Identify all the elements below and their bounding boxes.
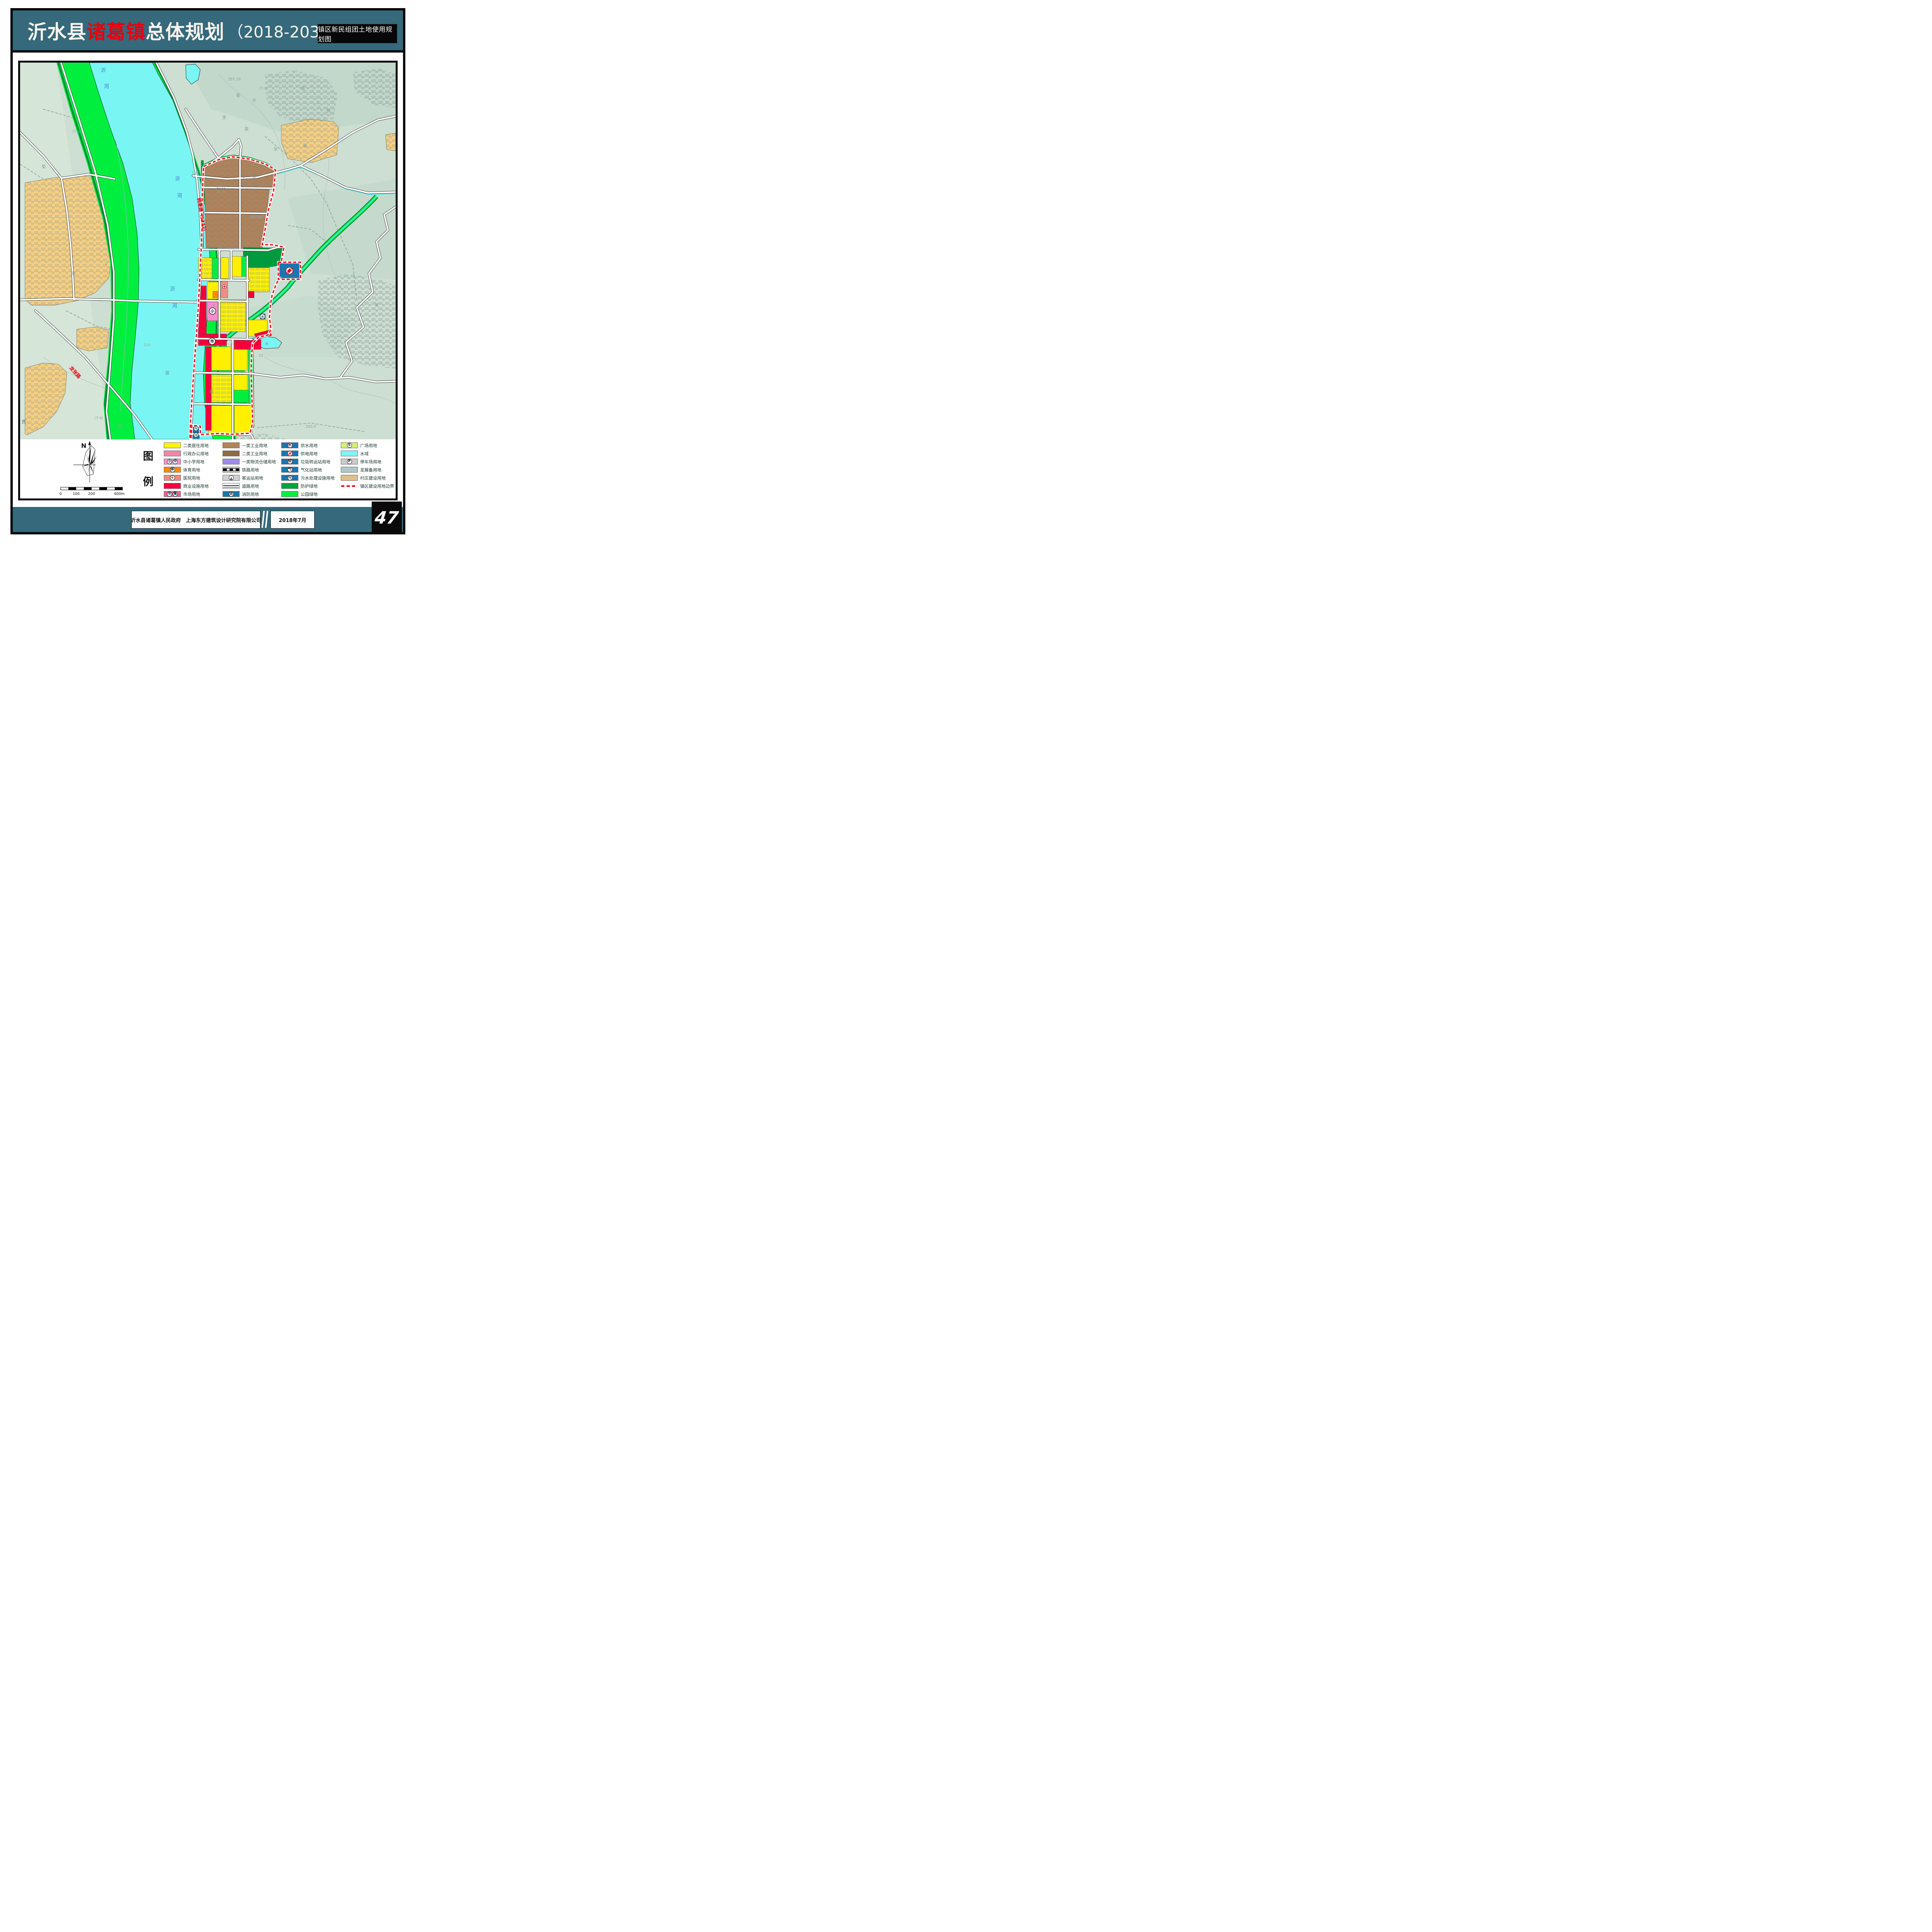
legend-item-label: 污水处理设施用地	[301, 475, 335, 481]
svg-text:（7-9）: （7-9）	[70, 130, 83, 134]
title-town: 诸葛镇	[87, 17, 146, 44]
scale-tick: 0	[60, 492, 62, 496]
legend-swatch-plain	[223, 451, 240, 456]
scale-bar: 0 100 200 400m	[60, 487, 124, 496]
legend-panel: N	[20, 439, 396, 498]
legend-badge-icon: 气	[287, 467, 293, 472]
legend-item: 污污水处理设施用地	[281, 474, 340, 482]
boundary-dash-icon	[341, 485, 357, 487]
legend-item: 气气化站用地	[281, 466, 340, 474]
legend-swatch-plain	[223, 442, 240, 448]
legend-column-4: S广场用地水域P停车场用地发展备用地村庄建设用地镇区建设用地边界	[341, 441, 400, 490]
legend-item: P停车场用地	[341, 457, 400, 466]
plan-title: 沂水县诸葛镇总体规划（2018-2035 年）	[27, 10, 367, 50]
legend-item: S广场用地	[341, 441, 400, 449]
legend-item-label: 铁路用地	[242, 467, 259, 473]
svg-text:栗: 栗	[245, 127, 249, 131]
hospital-cross-icon	[223, 285, 226, 289]
legend-swatch-plain	[281, 483, 298, 489]
legend-badge-icon: 水	[287, 443, 293, 448]
legend-item-label: 垃圾转运站用地	[301, 459, 330, 465]
legend-swatch-bus: Y	[223, 475, 240, 481]
legend-swatch-rail	[223, 467, 240, 473]
legend-swatch-badges: 污	[281, 475, 298, 481]
svg-text:渣: 渣	[222, 115, 226, 120]
legend-item-label: 发展备用地	[360, 467, 381, 473]
lightning-icon	[287, 451, 293, 456]
gas-badge: 气	[194, 427, 197, 430]
legend-badge-icon: 集	[173, 492, 178, 497]
scale-tick: 200	[88, 492, 95, 496]
svg-text:牲: 牲	[375, 303, 379, 308]
legend-item-label: 气化站用地	[301, 467, 322, 473]
railway-band-icon	[223, 468, 239, 471]
legend-item: 发展备用地	[341, 466, 400, 474]
legend-swatch-plain	[341, 451, 358, 456]
svg-text:苗: 苗	[209, 389, 213, 394]
legend-swatch-plain	[341, 467, 358, 473]
svg-text:张沂22: 张沂22	[216, 185, 226, 189]
svg-text:110: 110	[144, 343, 151, 347]
legend-item-label: 医院用地	[183, 475, 200, 481]
svg-text:葡: 葡	[42, 164, 46, 169]
svg-text:球: 球	[213, 303, 216, 307]
compass-and-scale: N	[43, 440, 159, 498]
header-band: 沂水县诸葛镇总体规划（2018-2035 年） 镇区新民组团土地使用规划图	[13, 10, 403, 53]
legend-swatch-badges: 市集	[164, 491, 181, 497]
legend-item: 二类工业用地	[223, 449, 281, 457]
legend-swatch-badges: S	[341, 442, 358, 448]
svg-text:苹: 苹	[274, 147, 277, 152]
legend-swatch-plain	[281, 491, 298, 497]
scale-tick: 100	[73, 492, 80, 496]
legend-item: 转垃圾转运站用地	[281, 457, 340, 466]
school-badge: 小	[210, 309, 214, 314]
legend-title-char-2: 例	[143, 473, 153, 488]
water-badge: 水	[261, 315, 264, 318]
svg-text:200.9: 200.9	[306, 425, 316, 429]
plan-sheet: 沂水县诸葛镇总体规划（2018-2035 年） 镇区新民组团土地使用规划图	[0, 0, 415, 543]
legend-item-label: 一类工业用地	[242, 442, 267, 449]
svg-text:葡: 葡	[303, 143, 307, 148]
compass-rose: N	[73, 441, 97, 483]
svg-text:油: 油	[301, 86, 304, 91]
legend-item: 镇区建设用地边界	[341, 482, 400, 490]
legend-swatch-road	[223, 483, 240, 489]
title-type: 总体规划	[146, 17, 224, 44]
legend-swatch-plain	[223, 459, 240, 464]
svg-text:（7-9）: （7-9）	[257, 87, 270, 91]
river-label: 沂	[175, 176, 180, 182]
legend-column-3: 水供水用地供电用地转垃圾转运站用地气气化站用地污污水处理设施用地防护绿地公园绿地	[281, 441, 340, 498]
legend-item-label: 村庄建设用地	[360, 475, 386, 481]
legend-item-label: 消防用地	[242, 491, 259, 497]
legend-item: 水域	[341, 449, 400, 457]
svg-text:水: 水	[244, 182, 247, 186]
svg-text:葡: 葡	[71, 271, 75, 276]
legend-item-label: 供水用地	[301, 442, 318, 449]
page-number-box: 47	[372, 502, 402, 534]
legend-swatch-plain	[164, 483, 181, 489]
river-label: 河	[172, 303, 177, 309]
svg-text:葡: 葡	[236, 93, 240, 98]
legend-swatch-badges: 消	[223, 491, 240, 497]
legend-item-label: 二类居住用地	[183, 442, 209, 449]
legend-item: 道路用地	[223, 482, 281, 490]
scale-tick: 400m	[114, 492, 124, 496]
legend-badge-icon: S	[347, 443, 352, 448]
legend-swatch-badges: 转	[281, 459, 298, 464]
legend-item: 铁路用地	[223, 466, 281, 474]
legend-item-label: 中小学用地	[183, 459, 204, 465]
date-box: 2018年7月	[270, 511, 315, 529]
legend-item: 消消防用地	[223, 490, 281, 498]
legend-item: 公园绿地	[281, 490, 340, 498]
svg-text:水: 水	[265, 342, 269, 346]
svg-text:287.29: 287.29	[228, 77, 241, 82]
legend-item-label: 防护绿地	[301, 483, 318, 489]
red-cross-icon: +	[170, 475, 175, 480]
legend-badge-icon: 消	[229, 492, 234, 497]
legend-swatch-boundary	[341, 483, 358, 489]
legend-item-label: 公园绿地	[301, 491, 318, 497]
title-county: 沂水县	[27, 17, 87, 44]
sheet-subtitle-box: 镇区新民组团土地使用规划图	[318, 24, 397, 43]
legend-badge-icon: 体	[170, 467, 175, 472]
legend-badge-icon: 污	[287, 475, 293, 480]
sewage-badge: 污	[194, 433, 197, 437]
legend-item-label: 客运站用地	[242, 475, 263, 481]
river-label: 沂	[101, 68, 106, 73]
legend-item: 小中中小学用地	[164, 457, 223, 466]
legend-badge-icon: 市	[167, 492, 172, 497]
svg-text:水: 水	[243, 174, 245, 177]
legend-item-label: 一类物流仓储用地	[242, 459, 276, 465]
legend-item: 行政办公用地	[164, 449, 223, 457]
svg-text:水: 水	[253, 174, 256, 177]
legend-item-label: 供电用地	[301, 451, 318, 457]
legend-item-label: 水域	[360, 451, 369, 457]
credit-box: 沂水县诸葛镇人民政府 上海东方建筑设计研究院有限公司	[131, 511, 260, 529]
legend-item: 村庄建设用地	[341, 474, 400, 482]
legend-item-label: 商业设施用地	[183, 483, 209, 489]
svg-text:水: 水	[255, 182, 257, 186]
legend-item: 一类物流仓储用地	[223, 457, 281, 466]
legend-item: 防护绿地	[281, 482, 340, 490]
legend-item-label: 二类工业用地	[242, 451, 267, 457]
legend-badge-icon: 中	[173, 459, 178, 464]
legend-item-label: 镇区建设用地边界	[360, 483, 394, 489]
legend-item: Y客运站用地	[223, 474, 281, 482]
legend-item-label: 市场用地	[183, 491, 200, 497]
legend-item: 市集市场用地	[164, 490, 223, 498]
compass-north-label: N	[81, 442, 86, 449]
svg-text:抽: 抽	[327, 108, 330, 113]
svg-text:苗: 苗	[165, 370, 170, 375]
svg-text:3: 3	[105, 262, 107, 266]
steering-wheel-icon: Y	[229, 475, 234, 480]
legend-item: 水供水用地	[281, 441, 340, 449]
power-station-icon	[286, 267, 293, 274]
map-frame: 小 市 水 气 污 水 水 水	[18, 61, 398, 500]
legend-column-1: 二类居住用地行政办公用地小中中小学用地体体育用地+医院用地商业设施用地市集市场用…	[164, 441, 223, 498]
legend-swatch-badges: 体	[164, 467, 181, 473]
legend-swatch-badges: 气	[281, 467, 298, 473]
legend-badge-icon: 转	[287, 459, 293, 464]
river-label: 河	[177, 193, 182, 199]
legend-item-label: 广场用地	[360, 442, 377, 449]
legend-swatch-plain	[164, 442, 181, 448]
legend-item: +医院用地	[164, 474, 223, 482]
legend-item-label: 道路用地	[242, 483, 259, 489]
svg-text:83.35: 83.35	[217, 190, 226, 194]
legend-title-char-1: 图	[143, 448, 153, 463]
svg-text:西: 西	[22, 420, 26, 424]
legend-item: 一类工业用地	[223, 441, 281, 449]
legend-item-label: 行政办公用地	[183, 451, 209, 457]
market-badge: 市	[210, 339, 214, 344]
legend-swatch-badges: 水	[281, 442, 298, 448]
svg-text:15: 15	[192, 171, 196, 175]
page-number: 47	[374, 508, 400, 528]
svg-text:52: 52	[259, 354, 264, 358]
river-label: 河	[104, 84, 109, 90]
legend-item: 商业设施用地	[164, 482, 223, 490]
river-label: 沂	[170, 286, 175, 292]
legend-swatch-plain	[164, 451, 181, 456]
legend-item-label: 停车场用地	[360, 459, 381, 465]
svg-text:井: 井	[252, 98, 256, 103]
svg-text:韩旺铁矿: 韩旺铁矿	[250, 215, 264, 219]
legend-badge-icon: P	[347, 459, 352, 464]
planning-map: 小 市 水 气 污 水 水 水	[20, 63, 396, 439]
legend-column-2: 一类工业用地二类工业用地一类物流仓储用地铁路用地Y客运站用地道路用地消消防用地	[223, 441, 281, 498]
legend-swatch-badges: 小中	[164, 459, 181, 464]
legend-item-label: 体育用地	[183, 467, 200, 473]
legend-badge-icon: 小	[167, 459, 172, 464]
svg-text:苹: 苹	[118, 424, 122, 429]
legend-swatch-cross: +	[164, 475, 181, 481]
legend-item: 二类居住用地	[164, 441, 223, 449]
legend-swatch-bolt	[281, 451, 298, 456]
legend-swatch-plain	[341, 475, 358, 481]
legend-item: 供电用地	[281, 449, 340, 457]
legend-swatch-badges: P	[341, 459, 358, 464]
svg-text:（7-9）: （7-9）	[92, 416, 105, 420]
legend-item: 体体育用地	[164, 466, 223, 474]
